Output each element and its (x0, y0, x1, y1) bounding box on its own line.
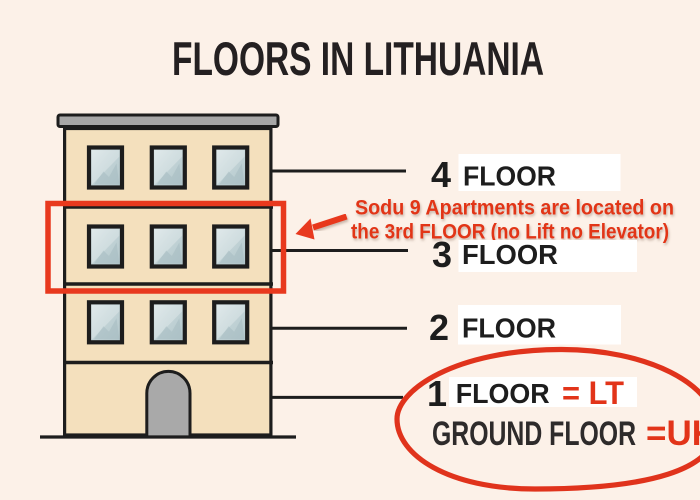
svg-text:FLOOR: FLOOR (462, 313, 556, 344)
svg-text:= LT: = LT (562, 375, 624, 411)
svg-text:FLOOR: FLOOR (456, 378, 550, 409)
svg-text:FLOOR: FLOOR (463, 161, 556, 192)
svg-text:4: 4 (431, 154, 451, 195)
svg-text:=UK: =UK (646, 414, 700, 453)
svg-text:1: 1 (427, 373, 447, 414)
svg-text:FLOORS IN LITHUANIA: FLOORS IN LITHUANIA (172, 32, 544, 85)
svg-text:FLOOR: FLOOR (462, 239, 558, 270)
svg-text:GROUND FLOOR: GROUND FLOOR (432, 415, 636, 453)
svg-text:3: 3 (432, 234, 452, 275)
svg-text:2: 2 (429, 307, 449, 348)
svg-text:Sodu 9 Apartments are located: Sodu 9 Apartments are located on (355, 197, 674, 220)
